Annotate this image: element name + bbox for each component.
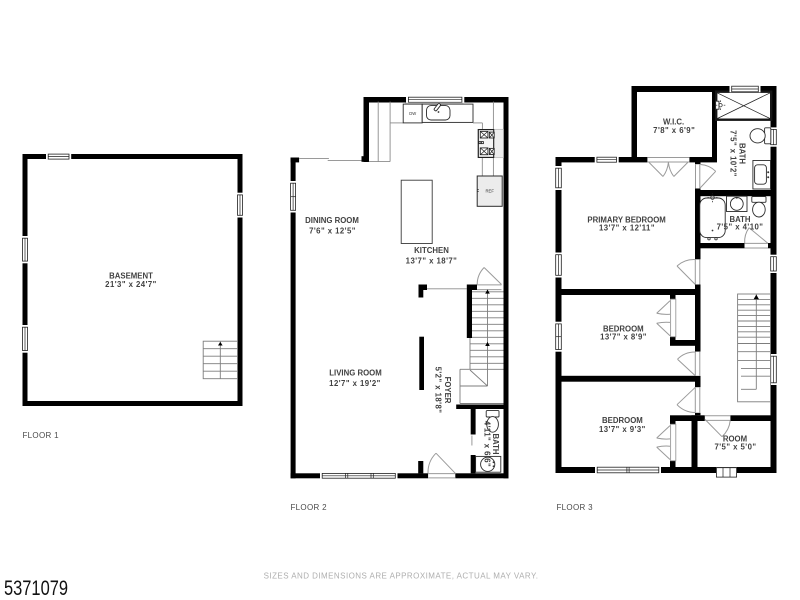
svg-text:7'5" x 10'2": 7'5" x 10'2" <box>728 130 737 177</box>
svg-text:FLOOR 2: FLOOR 2 <box>291 503 328 512</box>
svg-text:13'7" x 12'11": 13'7" x 12'11" <box>599 223 655 232</box>
svg-text:7'5" x 5'0": 7'5" x 5'0" <box>714 443 756 452</box>
svg-text:13'7" x 8'9": 13'7" x 8'9" <box>600 333 647 342</box>
svg-text:13'7" x 18'7": 13'7" x 18'7" <box>406 256 458 265</box>
svg-text:12'7" x 19'2": 12'7" x 19'2" <box>329 379 381 388</box>
svg-text:DINING ROOM: DINING ROOM <box>305 216 359 225</box>
svg-text:DW: DW <box>409 111 416 116</box>
svg-text:FOYER: FOYER <box>443 377 452 404</box>
svg-text:13'7" x 9'3": 13'7" x 9'3" <box>599 425 646 434</box>
svg-text:5'2" x 18'8": 5'2" x 18'8" <box>434 367 443 414</box>
svg-text:BEDROOM: BEDROOM <box>602 416 643 425</box>
svg-text:FLOOR 1: FLOOR 1 <box>23 431 60 440</box>
svg-text:FLOOR 3: FLOOR 3 <box>557 503 594 512</box>
svg-text:KITCHEN: KITCHEN <box>414 246 449 255</box>
svg-text:LIVING ROOM: LIVING ROOM <box>329 368 381 377</box>
svg-text:BASEMENT: BASEMENT <box>109 271 153 280</box>
svg-text:5371079: 5371079 <box>4 577 68 600</box>
svg-text:BATH: BATH <box>738 143 747 164</box>
svg-text:4'11" x 6'6": 4'11" x 6'6" <box>482 421 491 467</box>
svg-text:7'8" x 6'9": 7'8" x 6'9" <box>653 126 695 135</box>
svg-text:7'5" x 4'10": 7'5" x 4'10" <box>717 223 764 232</box>
svg-text:REF: REF <box>486 189 495 194</box>
svg-text:7'6" x 12'5": 7'6" x 12'5" <box>309 227 356 236</box>
svg-text:SIZES AND DIMENSIONS ARE APPRO: SIZES AND DIMENSIONS ARE APPROXIMATE, AC… <box>264 572 539 581</box>
svg-text:BATH: BATH <box>491 433 500 454</box>
svg-text:21'3" x 24'7": 21'3" x 24'7" <box>105 280 157 289</box>
